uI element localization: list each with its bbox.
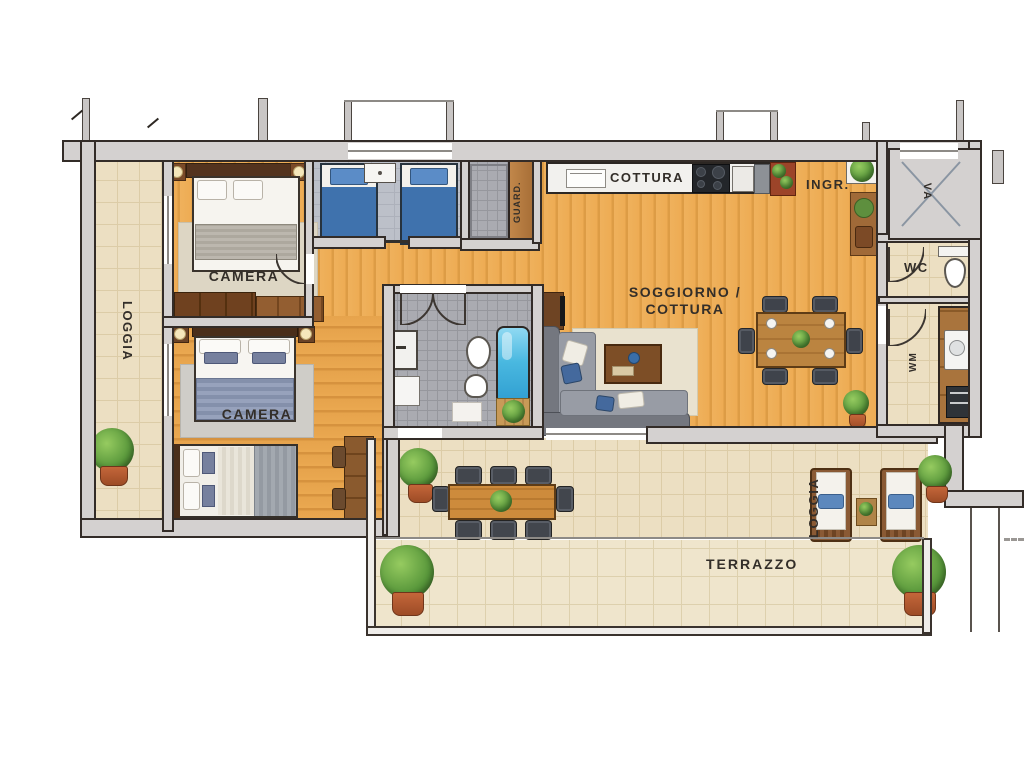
wardrobe-label: GUARD. [512,170,522,234]
loggia-bottom-label: LOGGIA [806,482,821,538]
wall-stub-3 [344,100,352,142]
dining-plate-3 [766,348,777,359]
outer-wall-left [80,140,96,538]
loggia-left-pot [100,466,128,486]
kitchen-cabinet [732,166,754,192]
soggiorno-label-line2: COTTURA [605,301,765,318]
wall-elevator-left [876,140,888,240]
coffee-table-tray [612,366,634,376]
stub-link-line-1 [344,100,454,102]
loggia-window-2-line [167,344,169,416]
loggia-bottom-pot-right [926,486,948,503]
soggiorno-label-line1: SOGGIORNO / [605,284,765,301]
dining-centerpiece-plant [792,330,810,348]
laundry-label: WM [908,344,919,380]
dining-chair-top-2 [812,296,838,313]
wall-stub-2 [258,98,268,142]
twin-bed1-pillow [330,168,368,185]
outer-wall-top [62,140,982,162]
dashed-boundary [1004,538,1024,541]
terrace-wall-bottom [366,626,932,636]
loggia-terrazzo-divider [376,537,924,539]
lounger-table-plant [859,502,873,516]
camera2-lamp-left [174,328,186,340]
twin-door-leaf [386,240,410,243]
wall-stub-right-top [992,150,1004,184]
terrace-chair-top-1 [455,466,482,485]
bathtub-highlight [502,332,512,360]
cooktop-burner-2 [712,166,725,179]
bath-vanity [392,330,418,370]
cottura-label: COTTURA [610,170,684,185]
loggia-window-1-line [167,196,169,264]
wall-stub-8 [956,100,964,142]
soggiorno-label: SOGGIORNO / COTTURA [605,284,765,318]
terrace-table-plant [490,490,512,512]
wall-twin-bottom-b [408,236,466,249]
bathroom-plant [502,400,525,423]
desk-chair-1 [332,446,346,468]
window-top-1-line [348,150,452,152]
twin-bed2-pillow [410,168,448,185]
cooktop-burner-1 [696,167,706,177]
wall-stub-1 [82,98,90,142]
wall-stub-5 [716,110,724,142]
camera2-cushion-left [204,352,238,364]
terrace-wall-left [366,438,376,634]
coffee-table [604,344,662,384]
sofa-pillow-white-2 [617,391,645,410]
dining-chair-top-1 [762,296,788,313]
bathroom-door-arc-right [433,292,466,325]
wall-wc-laundry [878,296,978,304]
kitchen-sink-line [570,173,602,174]
dining-chair-bottom-1 [762,368,788,385]
ingresso-label: INGR. [806,177,850,192]
neighbour-room-corner [970,508,1000,632]
sofa-pillow-blue-2 [595,395,615,412]
laundry-door-gap [878,306,886,344]
camera2-lamp-right [300,328,312,340]
loggia-left-end-wall [386,438,400,538]
bathroom-wall-right [531,284,544,436]
kitchen-tall-unit [754,164,770,194]
tv-screen [560,296,565,326]
loggia-bottom-pot-left [408,484,433,503]
sofa-pillow-blue-1 [560,362,583,385]
wall-shower-bottom [460,238,540,251]
wall-twin-bottom-a [312,236,386,249]
washing-machine-door [949,340,965,356]
terrazzo-floor [374,540,928,632]
dining-plate-2 [824,318,835,329]
camera1-label: CAMERA [196,268,292,284]
terrazzo-pot-left [392,592,424,616]
terrace-chair-top-2 [490,466,517,485]
camera2-cushion-right [252,352,286,364]
terrazzo-plant-right [892,545,946,599]
camera3-pillow-1 [183,449,200,477]
coffee-table-bowl [628,352,640,364]
stub-link-line-2 [716,110,778,112]
camera1-pillow-left [197,180,227,200]
dining-plate-1 [766,318,777,329]
desk-chair-2 [332,488,346,510]
laundry-appliance-slit1 [950,392,968,394]
terrace-chair-right [556,486,574,512]
kitchen-sink [566,169,606,188]
camera2-label: CAMERA [202,406,312,422]
terrace-chair-top-3 [525,466,552,485]
elevator-label: VA [921,183,933,201]
wall-laundry-bottom [876,424,982,438]
loggia-left-label: LOGGIA [120,296,135,366]
wc-cistern [938,246,970,257]
bath-bidet [464,374,488,398]
laundry-door-arc [888,308,926,346]
north-tick-2 [147,118,159,129]
dining-chair-bottom-2 [812,368,838,385]
floor-plan: VA CAMERA GUARD. C [0,0,1024,768]
bath-vanity-faucet [396,346,406,349]
wall-mid-cameras [162,316,314,328]
wall-twin-shower [460,160,470,242]
bathroom-door-arc-left [400,292,433,325]
camera3-pillow-2 [183,482,200,510]
lounger-2-pillow [888,494,914,509]
dining-plate-4 [824,348,835,359]
sliding-door-line [546,433,646,435]
loggia-bottom-plant-left [398,448,438,488]
terrazzo-plant-left [380,545,434,599]
camera3-sheet [218,447,254,515]
terrace-wall-right [922,538,932,634]
ingresso-bench-cushion [854,198,874,218]
wall-stub-4 [446,100,454,142]
outer-wall-bottom-bedrooms [80,518,400,538]
bath-cabinet [392,376,420,406]
wc-label: WC [904,260,929,275]
camera3-cushion-1 [202,452,215,474]
camera1-pillow-right [233,180,263,200]
wall-stub-6 [770,110,778,142]
wall-wardrobe-right [532,160,542,244]
lounger-1-pillow [818,494,844,509]
door-camera1 [306,254,314,284]
loggia-bottom-plant-right [918,455,952,489]
bath-mat [452,402,482,422]
dining-chair-left [738,328,755,354]
laundry-appliance-slit2 [950,402,968,404]
cooktop-burner-3 [697,180,705,188]
window-top-2-line [900,150,958,152]
dining-chair-right [846,328,863,354]
cooktop-burner-4 [713,181,722,190]
terrace-door-hall [398,428,442,438]
terrazzo-label: TERRAZZO [706,556,798,572]
camera3-blanket [254,446,296,516]
wall-stub-7 [862,122,870,142]
ingresso-bench-item [855,226,873,248]
kitchen-planter-plant-2 [780,176,793,189]
twin-dresser-knob [378,171,382,175]
shower-tray [470,164,508,238]
camera3-cushion-2 [202,485,215,507]
soggiorno-plant [843,390,869,416]
neighbour-wall-horiz [944,490,1024,508]
